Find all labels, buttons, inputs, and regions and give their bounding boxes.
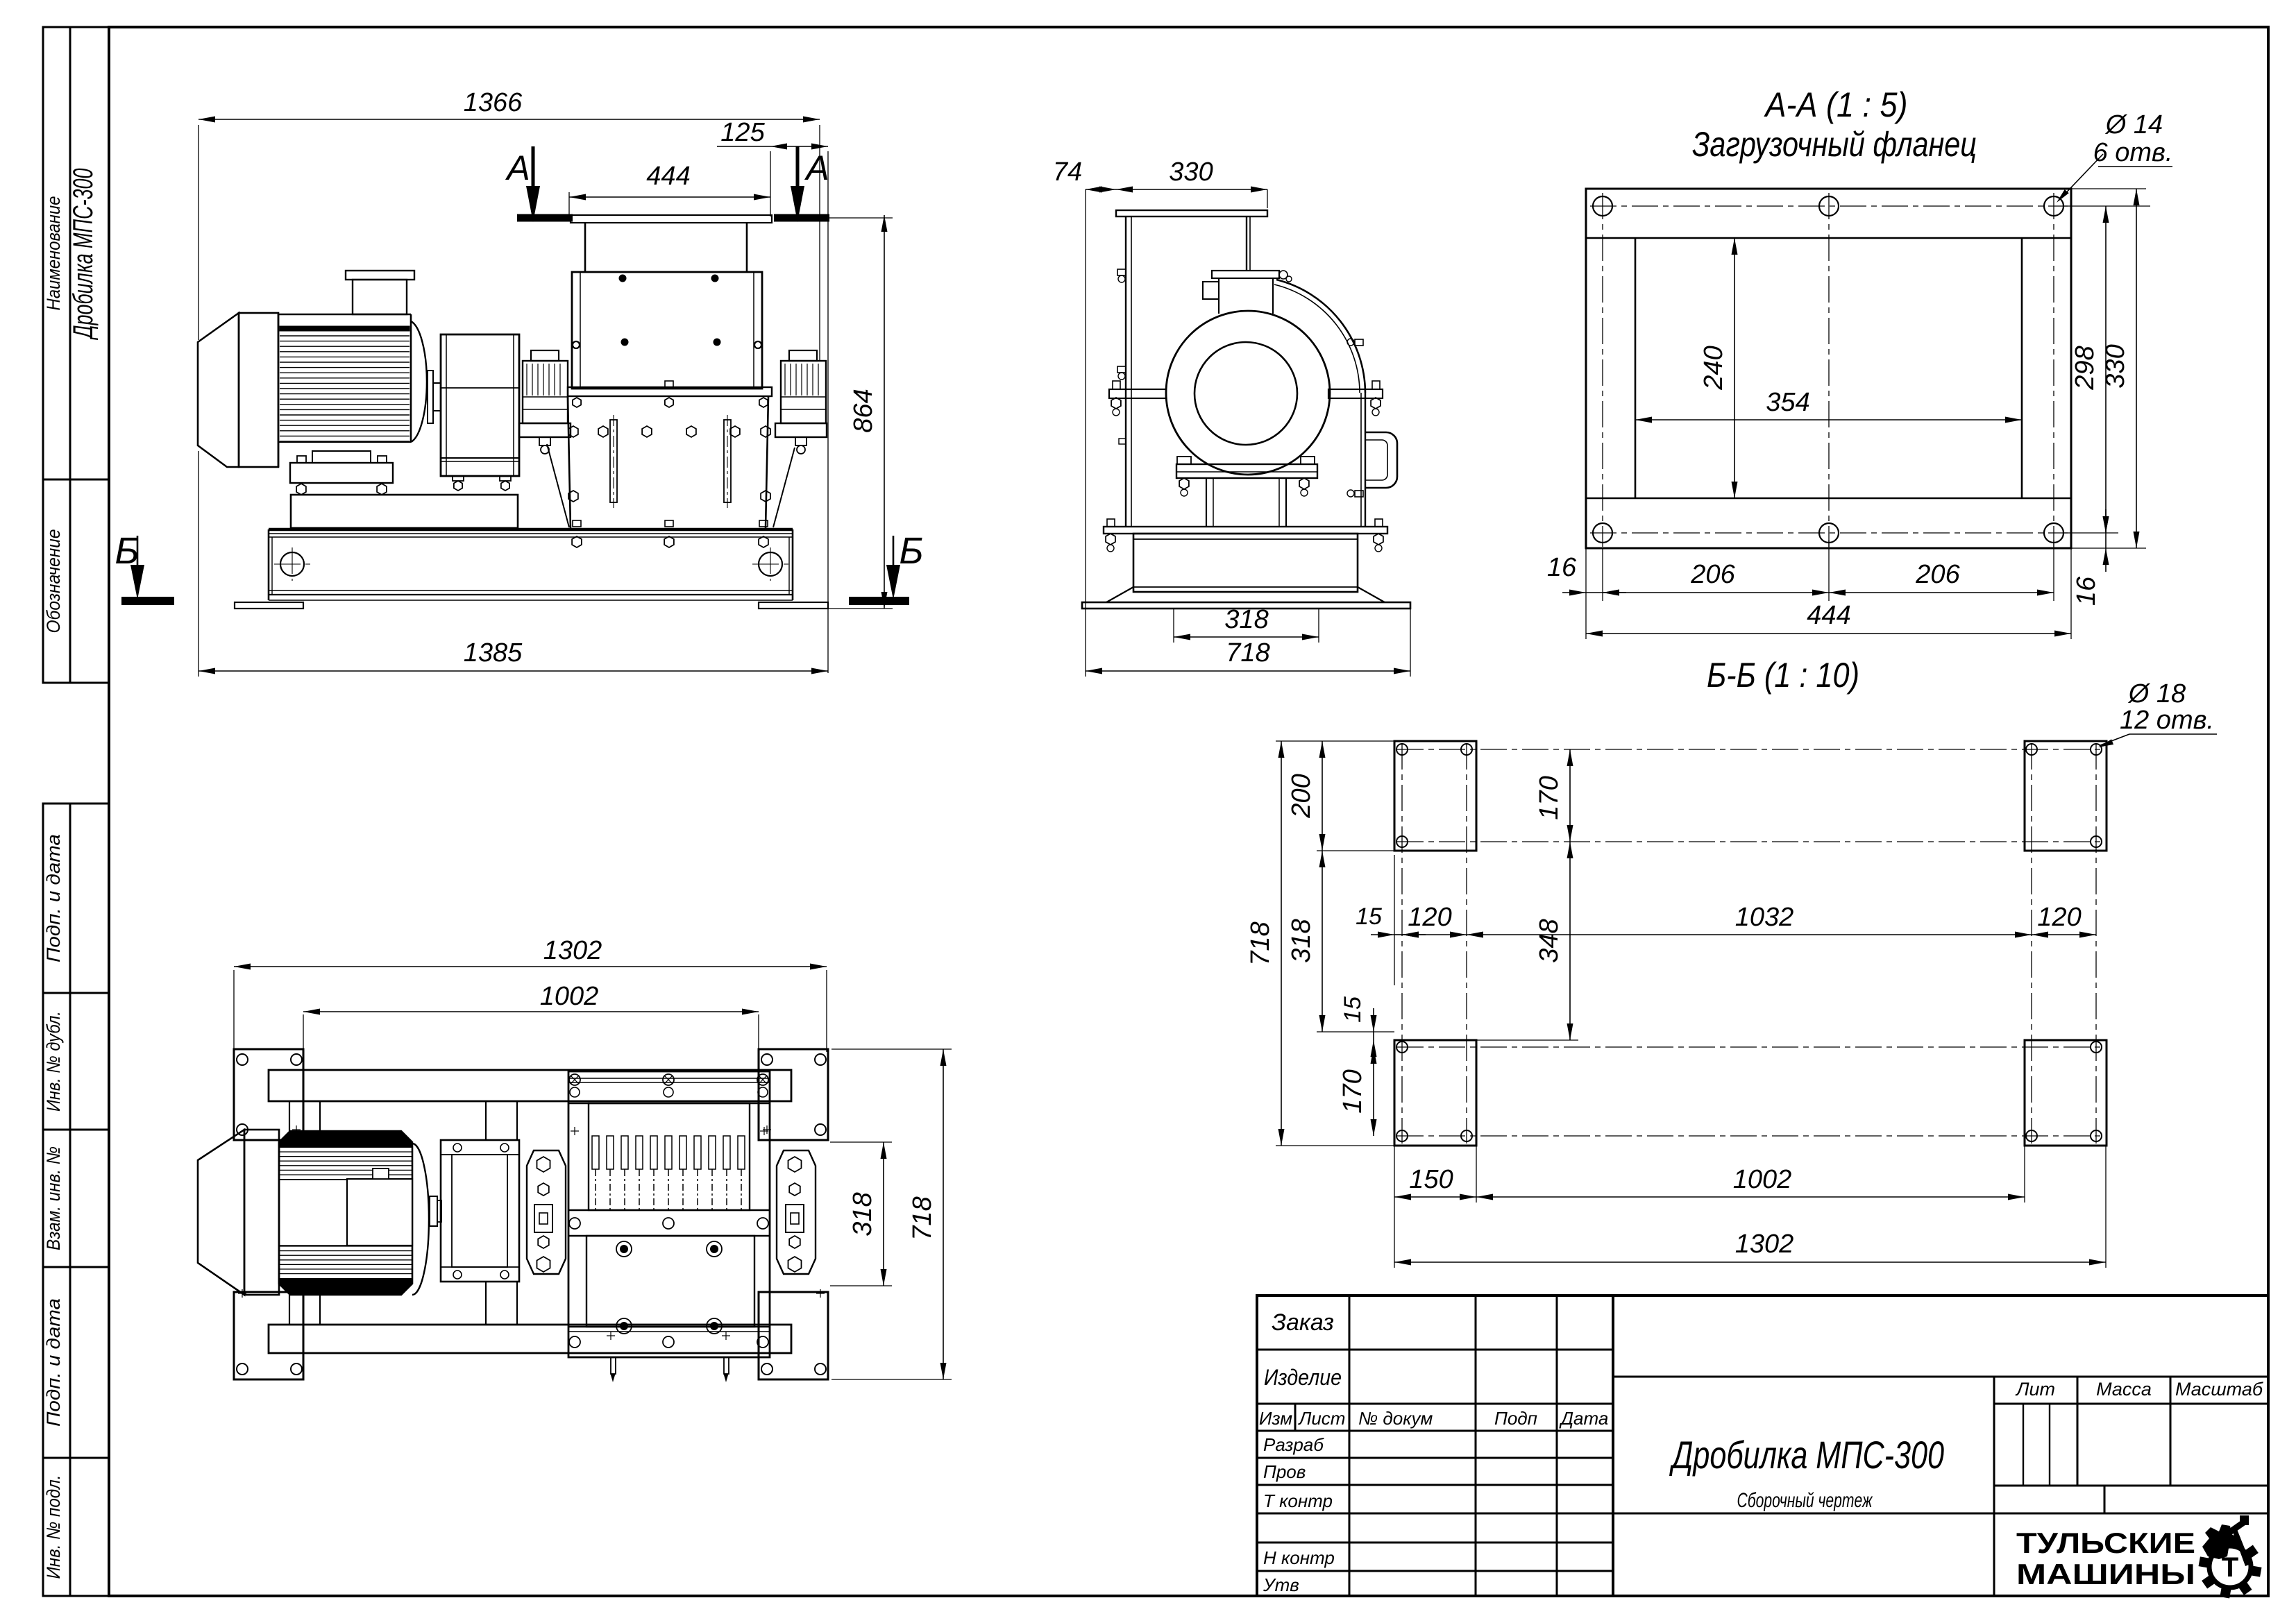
svg-text:15: 15 — [1356, 903, 1382, 930]
svg-text:Подп: Подп — [1494, 1408, 1537, 1429]
svg-text:Загрузочный фланец: Загрузочный фланец — [1692, 125, 1977, 164]
svg-text:348: 348 — [1535, 919, 1564, 962]
svg-text:Изм: Изм — [1259, 1408, 1292, 1429]
svg-text:444: 444 — [646, 162, 690, 191]
svg-text:1385: 1385 — [464, 638, 523, 668]
svg-text:Пров: Пров — [1263, 1461, 1306, 1482]
svg-text:Взам. инв. №: Взам. инв. № — [43, 1146, 64, 1250]
svg-text:74: 74 — [1053, 158, 1082, 187]
svg-text:718: 718 — [1246, 921, 1275, 965]
svg-text:Дата: Дата — [1559, 1408, 1609, 1429]
svg-text:330: 330 — [2101, 344, 2130, 388]
svg-text:16: 16 — [2072, 576, 2101, 606]
svg-text:Наименование: Наименование — [43, 196, 64, 311]
svg-text:Подп. и дата: Подп. и дата — [43, 1298, 64, 1427]
svg-text:318: 318 — [1287, 919, 1316, 962]
svg-text:Сборочный чертеж: Сборочный чертеж — [1737, 1489, 1873, 1512]
svg-text:Б: Б — [899, 530, 923, 572]
svg-text:Масштаб: Масштаб — [2175, 1379, 2263, 1400]
svg-text:Обозначение: Обозначение — [43, 529, 64, 634]
svg-text:16: 16 — [1547, 553, 1577, 582]
svg-text:Ø 14: Ø 14 — [2104, 110, 2163, 139]
svg-text:206: 206 — [1915, 560, 1960, 589]
svg-text:Ø 18: Ø 18 — [2127, 679, 2186, 708]
svg-text:1002: 1002 — [540, 982, 599, 1011]
svg-text:Масса: Масса — [2096, 1379, 2152, 1400]
svg-text:А-А (1 : 5): А-А (1 : 5) — [1764, 85, 1908, 124]
svg-text:Н контр: Н контр — [1263, 1547, 1335, 1568]
svg-text:120: 120 — [2037, 903, 2081, 932]
svg-text:15: 15 — [1340, 996, 1366, 1023]
svg-text:120: 120 — [1408, 903, 1451, 932]
svg-text:240: 240 — [1699, 346, 1728, 390]
svg-text:Заказ: Заказ — [1272, 1309, 1334, 1336]
svg-text:318: 318 — [1224, 605, 1268, 634]
svg-text:718: 718 — [1226, 638, 1269, 668]
svg-text:354: 354 — [1766, 388, 1809, 417]
svg-text:6 отв.: 6 отв. — [2093, 138, 2173, 167]
svg-text:200: 200 — [1287, 774, 1316, 818]
svg-text:864: 864 — [849, 389, 878, 432]
svg-text:МАШИНЫ: МАШИНЫ — [2016, 1558, 2195, 1590]
svg-text:ТУЛЬСКИЕ: ТУЛЬСКИЕ — [2016, 1527, 2195, 1559]
svg-text:Инв. № подл.: Инв. № подл. — [43, 1475, 64, 1579]
svg-text:444: 444 — [1807, 601, 1850, 630]
svg-text:1032: 1032 — [1735, 903, 1794, 932]
svg-text:170: 170 — [1535, 776, 1564, 819]
svg-text:170: 170 — [1338, 1069, 1367, 1113]
svg-text:Утв: Утв — [1263, 1574, 1299, 1595]
svg-text:125: 125 — [720, 118, 765, 147]
svg-text:1366: 1366 — [464, 88, 523, 117]
svg-text:Лист: Лист — [1298, 1408, 1346, 1429]
svg-text:1302: 1302 — [543, 936, 602, 965]
svg-text:718: 718 — [908, 1196, 937, 1240]
svg-text:Подп. и дата: Подп. и дата — [43, 834, 64, 962]
svg-text:Т контр: Т контр — [1263, 1490, 1333, 1511]
svg-text:Б: Б — [115, 530, 139, 572]
svg-text:Б-Б (1 : 10): Б-Б (1 : 10) — [1707, 656, 1859, 695]
svg-text:Дробилка МПС-300: Дробилка МПС-300 — [1669, 1433, 1944, 1477]
svg-text:12 отв.: 12 отв. — [2120, 706, 2214, 735]
svg-text:150: 150 — [1409, 1165, 1453, 1194]
svg-text:Изделие: Изделие — [1264, 1365, 1342, 1390]
svg-text:Инв. № дубл.: Инв. № дубл. — [43, 1011, 64, 1112]
svg-text:А: А — [804, 148, 829, 187]
svg-text:318: 318 — [848, 1192, 877, 1236]
svg-text:206: 206 — [1690, 560, 1735, 589]
svg-text:Лит: Лит — [2015, 1379, 2055, 1400]
svg-text:Дробилка МПС-300: Дробилка МПС-300 — [68, 169, 99, 341]
svg-text:А: А — [505, 148, 530, 187]
svg-text:298: 298 — [2070, 346, 2100, 390]
svg-text:№ докум: № докум — [1358, 1408, 1433, 1429]
svg-text:Разраб: Разраб — [1263, 1434, 1324, 1455]
svg-text:1002: 1002 — [1733, 1165, 1792, 1194]
svg-text:1302: 1302 — [1735, 1230, 1794, 1259]
svg-text:330: 330 — [1169, 158, 1213, 187]
